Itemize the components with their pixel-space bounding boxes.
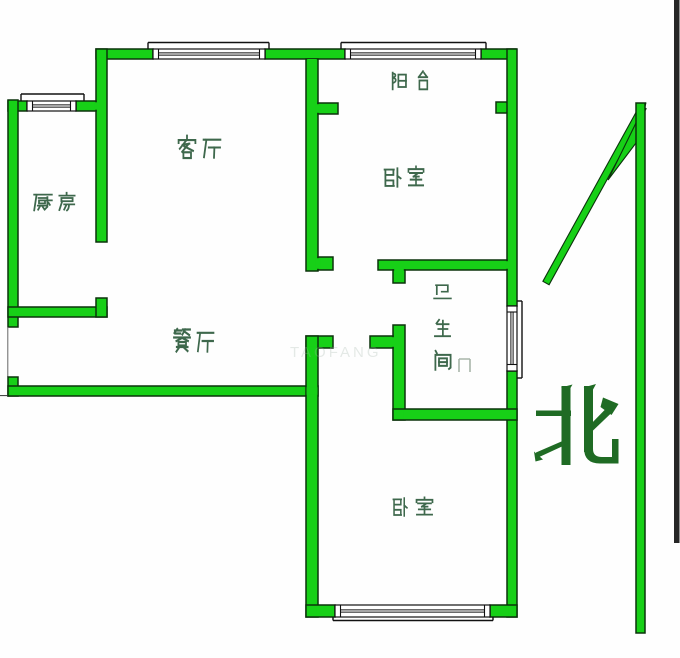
svg-text:TAOFANG: TAOFANG <box>290 344 382 361</box>
